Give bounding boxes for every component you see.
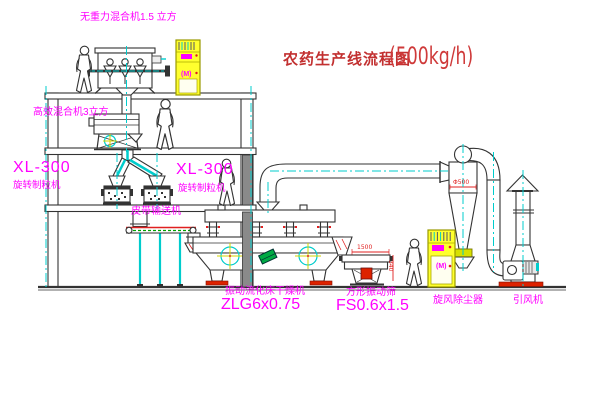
diagram-title-capacity: (500kg/h) [389,44,473,68]
worker-figure [407,239,422,285]
worker-figure [77,46,92,92]
label-top-mixer: 无重力混合机1.5 立方 [80,13,177,23]
label-granulator-left-name: 旋转制粒机 [13,181,61,191]
induced-draft-fan [499,261,543,287]
label-granulator-left-model: XL-300 [13,160,71,176]
label-granulator-right-name: 旋转制粒机 [178,184,226,194]
label-mid-mixer: 高效混合机3立方 [33,108,109,118]
dimension-sieve-length: 1500 [357,245,372,251]
high-efficiency-mixer [89,114,142,150]
cabinet1-motor-mark: (M) [181,71,192,78]
belt-conveyor [126,212,196,288]
label-sieve-model: FS0.6x1.5 [336,298,409,314]
label-cyclone: 旋风除尘器 [433,296,483,306]
worker-figure [157,99,173,149]
cabinet2-motor-mark: (M) [436,263,447,270]
process-flow-diagram: 农药生产线流程图 (500kg/h) 无重力混合机1.5 立方 高效混合机3立方… [0,0,600,403]
dimension-sieve-height: 340 [387,260,393,271]
label-belt-conveyor: 皮带输送机 [131,207,181,217]
flex-connectors [206,222,331,237]
label-induced-fan: 引风机 [513,296,543,306]
gravity-free-mixer [85,48,170,114]
dimension-cyclone-diameter: Φ500 [453,180,469,186]
control-cabinet-2 [428,230,455,287]
label-granulator-right-model: XL-300 [176,162,234,178]
control-cabinet-1 [176,40,200,95]
label-dryer-model: ZLG6x0.75 [221,297,300,313]
